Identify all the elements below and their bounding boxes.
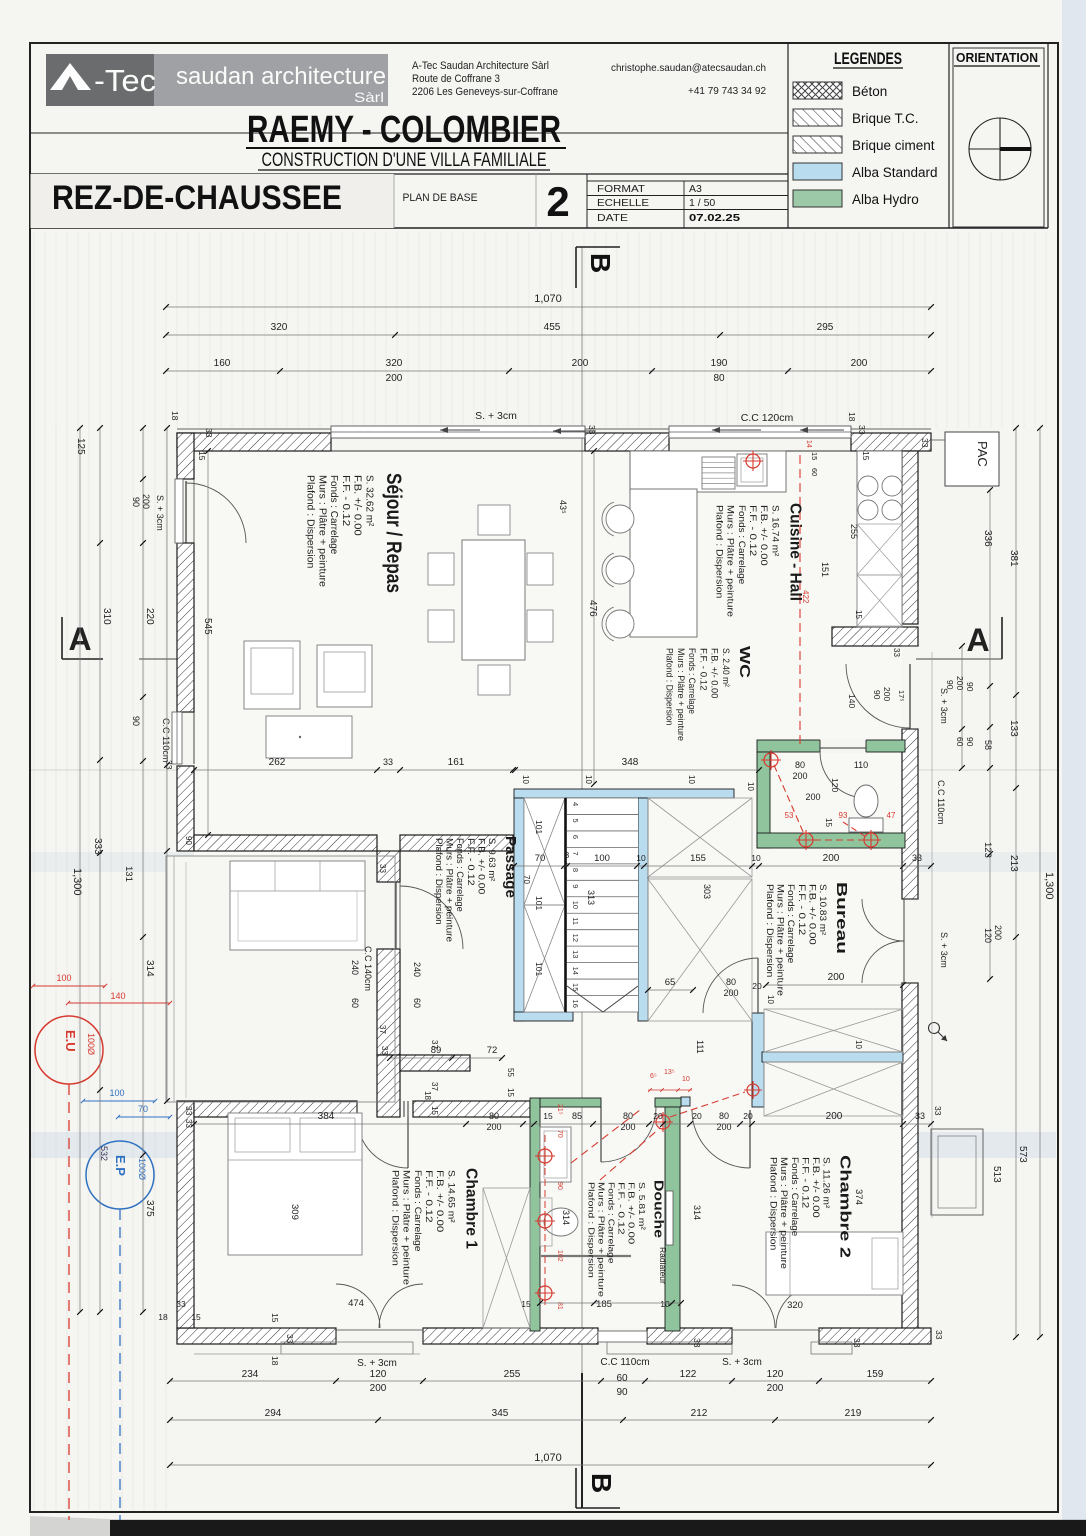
svg-text:303: 303 [702, 884, 712, 899]
svg-text:Plafond : Dispersion: Plafond : Dispersion [664, 648, 675, 726]
svg-text:B: B [585, 253, 616, 273]
svg-text:10: 10 [660, 1299, 670, 1309]
svg-text:200: 200 [805, 792, 820, 802]
svg-text:131: 131 [123, 866, 134, 882]
svg-text:Murs : Plâtre + peinture: Murs : Plâtre + peinture [445, 838, 455, 942]
svg-text:E.P: E.P [113, 1155, 128, 1176]
svg-text:F.F. - 0.12: F.F. - 0.12 [747, 505, 758, 556]
svg-text:53: 53 [785, 811, 794, 820]
svg-text:15: 15 [824, 818, 833, 827]
svg-text:240: 240 [412, 962, 422, 977]
svg-text:PLAN DE BASE: PLAN DE BASE [403, 192, 478, 204]
svg-text:37: 37 [378, 1025, 387, 1034]
svg-text:93: 93 [839, 811, 848, 820]
svg-text:Passage: Passage [502, 836, 518, 898]
svg-text:10: 10 [746, 782, 755, 791]
svg-text:160: 160 [214, 358, 231, 369]
svg-text:Murs : Plâtre + peinture: Murs : Plâtre + peinture [597, 1182, 607, 1297]
svg-text:200: 200 [828, 972, 845, 983]
svg-text:33: 33 [164, 760, 174, 770]
svg-text:Murs : Plâtre + peinture: Murs : Plâtre + peinture [675, 648, 686, 741]
svg-text:295: 295 [817, 322, 834, 333]
svg-text:47: 47 [887, 811, 896, 820]
svg-text:4: 4 [571, 802, 580, 806]
svg-text:Fonds : Carrelage: Fonds : Carrelage [790, 1157, 800, 1236]
svg-text:33: 33 [204, 428, 214, 438]
svg-text:F.F. - 0.12: F.F. - 0.12 [697, 648, 708, 691]
svg-text:C.C 110cm: C.C 110cm [600, 1357, 649, 1368]
svg-text:70: 70 [522, 875, 531, 884]
svg-text:DATE: DATE [597, 212, 628, 224]
svg-text:S. + 3cm: S. + 3cm [722, 1357, 762, 1368]
svg-text:375: 375 [144, 1200, 155, 1217]
svg-text:255: 255 [849, 524, 859, 539]
svg-text:S. + 3cm: S. + 3cm [939, 688, 949, 724]
svg-text:33: 33 [857, 425, 867, 435]
svg-text:E.U: E.U [63, 1030, 78, 1052]
svg-text:70: 70 [556, 1130, 563, 1138]
svg-text:100: 100 [594, 853, 610, 864]
svg-text:90: 90 [616, 1387, 628, 1398]
svg-text:Plafond : Dispersion: Plafond : Dispersion [713, 505, 724, 598]
svg-text:F.B. +/- 0.00: F.B. +/- 0.00 [758, 505, 769, 566]
svg-text:101: 101 [534, 962, 544, 976]
svg-text:A: A [966, 622, 989, 658]
svg-text:C.C 120cm: C.C 120cm [741, 412, 794, 424]
svg-text:Radiateur: Radiateur [658, 1247, 668, 1284]
svg-text:S. 5.81 m²: S. 5.81 m² [637, 1182, 647, 1230]
svg-text:F.B. +/- 0.00: F.B. +/- 0.00 [811, 1157, 821, 1218]
svg-text:saudan architecture: saudan architecture [176, 63, 386, 90]
svg-text:15: 15 [430, 1106, 439, 1115]
svg-text:155: 155 [690, 853, 706, 864]
svg-text:Plafond : Dispersion: Plafond : Dispersion [769, 1157, 779, 1250]
svg-text:43⁵: 43⁵ [558, 500, 568, 514]
svg-text:161: 161 [448, 757, 465, 768]
svg-text:RAEMY - COLOMBIER: RAEMY - COLOMBIER [247, 109, 561, 151]
svg-text:Sàrl: Sàrl [354, 89, 384, 105]
svg-text:90: 90 [131, 716, 141, 726]
svg-text:10: 10 [521, 775, 530, 784]
svg-text:70: 70 [535, 853, 546, 864]
svg-text:S. 32.62 m²: S. 32.62 m² [363, 475, 374, 527]
svg-text:15: 15 [521, 1299, 531, 1309]
svg-text:200: 200 [141, 494, 151, 509]
svg-text:200: 200 [620, 1122, 635, 1132]
svg-text:90: 90 [556, 1182, 563, 1190]
svg-text:200: 200 [486, 1122, 501, 1132]
svg-text:200: 200 [386, 373, 403, 384]
svg-text:200: 200 [882, 687, 892, 701]
svg-text:Alba Hydro: Alba Hydro [852, 192, 919, 207]
svg-text:33: 33 [933, 1106, 943, 1116]
svg-text:+41 79 743 34 92: +41 79 743 34 92 [688, 85, 766, 97]
svg-text:10: 10 [766, 995, 775, 1004]
svg-text:S. 2.40 m²: S. 2.40 m² [720, 648, 731, 687]
svg-text:Cuisine - Hall: Cuisine - Hall [786, 503, 803, 601]
svg-text:234: 234 [242, 1369, 259, 1380]
svg-text:8: 8 [571, 868, 580, 872]
svg-text:Murs : Plâtre + peinture: Murs : Plâtre + peinture [401, 1170, 412, 1285]
svg-text:60: 60 [616, 1373, 628, 1384]
svg-text:ORIENTATION: ORIENTATION [956, 50, 1038, 65]
svg-text:Brique T.C.: Brique T.C. [852, 111, 919, 126]
svg-text:LEGENDES: LEGENDES [834, 49, 902, 68]
svg-text:255: 255 [504, 1369, 521, 1380]
svg-text:314: 314 [144, 960, 155, 977]
svg-text:Fonds : Carrelage: Fonds : Carrelage [736, 505, 747, 584]
svg-text:133: 133 [1008, 720, 1019, 737]
svg-text:Plafond : Dispersion: Plafond : Dispersion [389, 1170, 400, 1266]
svg-text:18: 18 [423, 1091, 432, 1100]
svg-text:80: 80 [719, 1111, 729, 1121]
svg-text:ECHELLE: ECHELLE [597, 197, 649, 209]
svg-text:374: 374 [853, 1189, 864, 1205]
svg-text:384: 384 [318, 1111, 335, 1122]
svg-text:200: 200 [851, 358, 868, 369]
svg-text:320: 320 [386, 358, 403, 369]
svg-text:120: 120 [370, 1369, 387, 1380]
svg-text:Chambre 1: Chambre 1 [462, 1168, 479, 1249]
svg-text:20: 20 [752, 981, 762, 991]
svg-text:12: 12 [571, 934, 580, 942]
svg-text:33: 33 [184, 1119, 193, 1128]
svg-text:65: 65 [665, 977, 676, 988]
svg-text:33: 33 [912, 853, 922, 863]
svg-text:Bureau: Bureau [833, 882, 849, 954]
svg-text:S. 16.74 m²: S. 16.74 m² [769, 505, 780, 556]
svg-text:Murs : Plâtre + peinture: Murs : Plâtre + peinture [725, 505, 736, 617]
svg-text:33: 33 [920, 438, 930, 448]
svg-text:13: 13 [571, 950, 580, 958]
svg-text:100: 100 [109, 1088, 124, 1098]
svg-text:B: B [586, 1473, 617, 1493]
svg-text:10: 10 [571, 901, 580, 909]
svg-text:F.B. +/- 0.00: F.B. +/- 0.00 [807, 884, 817, 945]
svg-text:545: 545 [202, 618, 213, 635]
svg-text:314: 314 [561, 1210, 571, 1225]
svg-text:Murs : Plâtre + peinture: Murs : Plâtre + peinture [776, 884, 786, 996]
svg-text:33: 33 [285, 1334, 295, 1344]
svg-text:100: 100 [56, 973, 71, 983]
svg-text:6⁵: 6⁵ [650, 1073, 657, 1080]
svg-text:F.B. +/- 0.00: F.B. +/- 0.00 [627, 1182, 637, 1245]
svg-text:Fonds : Carrelage: Fonds : Carrelage [607, 1182, 617, 1264]
svg-text:123: 123 [982, 842, 993, 858]
svg-text:101: 101 [534, 896, 544, 910]
svg-text:6: 6 [571, 835, 580, 839]
svg-text:F.F. - 0.12: F.F. - 0.12 [797, 884, 807, 935]
svg-text:Fonds : Carrelage: Fonds : Carrelage [786, 884, 796, 963]
svg-text:513: 513 [991, 1166, 1002, 1183]
svg-text:90: 90 [131, 497, 141, 507]
svg-text:F.F. - 0.12: F.F. - 0.12 [800, 1157, 810, 1208]
svg-text:336: 336 [982, 530, 993, 547]
svg-text:A-Tec Saudan Architecture Sàrl: A-Tec Saudan Architecture Sàrl [412, 60, 549, 72]
svg-text:1,070: 1,070 [534, 293, 562, 305]
svg-text:CONSTRUCTION D'UNE VILLA FAMIL: CONSTRUCTION D'UNE VILLA FAMILIALE [262, 150, 547, 171]
svg-text:310: 310 [101, 608, 112, 625]
svg-text:F.B. +/- 0.00: F.B. +/- 0.00 [476, 838, 486, 894]
svg-text:15: 15 [270, 1313, 280, 1323]
svg-text:200: 200 [723, 988, 738, 998]
svg-text:212: 212 [691, 1408, 708, 1419]
svg-text:213: 213 [1008, 855, 1019, 872]
svg-text:200: 200 [767, 1383, 784, 1394]
svg-text:309: 309 [289, 1204, 300, 1220]
svg-text:333: 333 [92, 838, 103, 855]
svg-text:15: 15 [506, 1088, 515, 1097]
svg-text:185: 185 [596, 1299, 612, 1310]
svg-text:33: 33 [380, 1046, 389, 1055]
svg-text:S. 11.26 m²: S. 11.26 m² [822, 1157, 832, 1208]
svg-text:33: 33 [587, 425, 597, 435]
svg-text:10: 10 [584, 775, 593, 784]
svg-text:F.F. - 0.12: F.F. - 0.12 [617, 1182, 627, 1235]
svg-text:1,300: 1,300 [71, 868, 83, 896]
svg-text:345: 345 [492, 1408, 509, 1419]
svg-text:573: 573 [1017, 1146, 1028, 1163]
svg-text:33: 33 [852, 1338, 862, 1348]
svg-text:33: 33 [176, 1299, 186, 1309]
svg-text:200: 200 [993, 925, 1003, 940]
svg-text:5: 5 [571, 818, 580, 822]
svg-text:140: 140 [110, 991, 125, 1001]
svg-text:F.B. +/- 0.00: F.B. +/- 0.00 [434, 1170, 445, 1232]
svg-text:200: 200 [572, 358, 589, 369]
svg-text:20: 20 [692, 1111, 702, 1121]
svg-text:7: 7 [571, 851, 580, 855]
svg-text:Plafond : Dispersion: Plafond : Dispersion [304, 475, 315, 568]
svg-text:33: 33 [892, 648, 901, 657]
svg-text:33: 33 [184, 1106, 194, 1116]
svg-text:110: 110 [854, 760, 868, 770]
svg-text:60: 60 [350, 998, 360, 1008]
svg-text:F.F. - 0.12: F.F. - 0.12 [423, 1170, 434, 1223]
svg-text:-Tec: -Tec [94, 63, 156, 98]
svg-text:200: 200 [716, 1122, 731, 1132]
svg-text:33: 33 [915, 1111, 925, 1121]
svg-text:10: 10 [751, 853, 761, 863]
svg-text:101: 101 [534, 820, 544, 834]
svg-text:Plafond : Dispersion: Plafond : Dispersion [765, 884, 775, 977]
svg-text:80: 80 [713, 373, 725, 384]
svg-text:1,300: 1,300 [1043, 872, 1055, 900]
svg-text:90: 90 [965, 737, 975, 747]
svg-text:532: 532 [99, 1146, 109, 1161]
svg-text:18: 18 [270, 1356, 280, 1366]
svg-text:320: 320 [787, 1300, 803, 1311]
svg-text:F.B. +/- 0.00: F.B. +/- 0.00 [352, 475, 363, 536]
svg-text:120: 120 [983, 928, 993, 943]
svg-text:S. + 3cm: S. + 3cm [475, 410, 517, 422]
svg-text:C.C 110cm: C.C 110cm [936, 780, 946, 824]
svg-text:Alba Standard: Alba Standard [852, 165, 938, 180]
svg-text:476: 476 [587, 600, 598, 617]
svg-text:455: 455 [544, 322, 561, 333]
svg-text:C.C 140cm: C.C 140cm [363, 946, 373, 991]
svg-text:15: 15 [861, 451, 871, 461]
svg-text:S. 9.63 m²: S. 9.63 m² [487, 838, 497, 881]
svg-text:33: 33 [383, 757, 393, 767]
svg-text:07.02.25: 07.02.25 [689, 212, 740, 224]
svg-text:200: 200 [826, 1111, 843, 1122]
svg-text:15: 15 [854, 610, 863, 619]
svg-text:Brique ciment: Brique ciment [852, 138, 935, 153]
svg-text:313: 313 [586, 890, 596, 905]
svg-text:C.C 110cm: C.C 110cm [161, 718, 171, 762]
svg-text:55: 55 [506, 1068, 515, 1077]
svg-text:200: 200 [792, 771, 807, 781]
svg-text:2: 2 [546, 178, 569, 225]
svg-text:262: 262 [269, 757, 286, 768]
svg-text:Douche: Douche [652, 1180, 667, 1238]
svg-text:80: 80 [726, 977, 736, 987]
svg-text:320: 320 [271, 322, 288, 333]
svg-text:16: 16 [571, 1000, 580, 1008]
svg-text:2206 Les Geneveys-sur-Coffrane: 2206 Les Geneveys-sur-Coffrane [412, 86, 558, 98]
svg-text:S. + 3cm: S. + 3cm [155, 495, 165, 531]
svg-text:F.F. - 0.12: F.F. - 0.12 [340, 475, 351, 527]
svg-text:100Ø: 100Ø [137, 1158, 147, 1180]
svg-text:15: 15 [197, 451, 207, 461]
svg-text:120: 120 [767, 1369, 784, 1380]
svg-text:REZ-DE-CHAUSSEE: REZ-DE-CHAUSSEE [52, 179, 342, 217]
svg-text:120: 120 [830, 778, 840, 792]
svg-text:Fonds : Carrelage: Fonds : Carrelage [412, 1170, 423, 1252]
svg-text:15: 15 [191, 1312, 201, 1322]
svg-text:159: 159 [867, 1369, 884, 1380]
svg-text:10: 10 [854, 1040, 863, 1049]
svg-text:140: 140 [847, 694, 857, 708]
svg-text:Plafond : Dispersion: Plafond : Dispersion [587, 1182, 597, 1278]
svg-text:Route de Coffrane 3: Route de Coffrane 3 [412, 73, 500, 85]
svg-text:125: 125 [75, 438, 86, 455]
svg-text:314: 314 [692, 1205, 702, 1220]
svg-text:20: 20 [743, 1111, 753, 1121]
svg-text:A3: A3 [689, 183, 702, 195]
svg-text:85: 85 [572, 1111, 582, 1121]
svg-text:200: 200 [823, 853, 840, 864]
svg-text:13⁵: 13⁵ [664, 1069, 675, 1076]
svg-text:100Ø: 100Ø [86, 1033, 96, 1055]
svg-text:S. + 3cm: S. + 3cm [357, 1358, 397, 1369]
svg-text:219: 219 [845, 1408, 862, 1419]
svg-text:90: 90 [965, 682, 975, 692]
svg-text:18: 18 [158, 1312, 168, 1322]
svg-text:Murs : Plâtre + peinture: Murs : Plâtre + peinture [779, 1157, 789, 1269]
svg-text:Plafond : Dispersion: Plafond : Dispersion [434, 838, 444, 925]
svg-text:1 / 50: 1 / 50 [689, 197, 715, 209]
svg-text:14: 14 [805, 440, 812, 448]
svg-text:10: 10 [687, 775, 696, 784]
svg-text:190: 190 [711, 358, 728, 369]
svg-text:21⁵: 21⁵ [556, 1104, 563, 1115]
svg-text:90: 90 [872, 690, 882, 700]
svg-text:80: 80 [623, 1111, 633, 1121]
svg-text:151: 151 [820, 562, 830, 577]
svg-text:122: 122 [680, 1369, 697, 1380]
svg-text:F.F. - 0.12: F.F. - 0.12 [466, 838, 476, 886]
svg-text:348: 348 [622, 757, 639, 768]
svg-text:111: 111 [695, 1040, 705, 1054]
svg-text:33: 33 [378, 864, 387, 873]
svg-text:Fonds : Carrelage: Fonds : Carrelage [455, 838, 465, 912]
svg-text:10: 10 [636, 853, 646, 863]
svg-text:240: 240 [350, 960, 360, 975]
svg-text:3: 3 [565, 851, 570, 860]
svg-text:37: 37 [430, 1040, 439, 1049]
svg-text:F.B. +/- 0.00: F.B. +/- 0.00 [709, 648, 720, 698]
svg-text:60: 60 [412, 998, 422, 1008]
svg-text:20: 20 [653, 1111, 663, 1121]
svg-text:christophe.saudan@atecsaudan.c: christophe.saudan@atecsaudan.ch [611, 62, 766, 74]
svg-text:220: 220 [144, 608, 155, 625]
svg-text:Béton: Béton [852, 84, 887, 99]
svg-text:9: 9 [571, 884, 580, 888]
svg-text:PAC: PAC [975, 441, 990, 467]
svg-text:60: 60 [810, 468, 819, 476]
svg-text:14: 14 [571, 967, 580, 975]
svg-text:33: 33 [934, 1330, 944, 1340]
svg-text:200: 200 [370, 1383, 387, 1394]
svg-text:10: 10 [682, 1076, 690, 1083]
svg-text:Séjour / Repas: Séjour / Repas [382, 473, 405, 593]
svg-text:72: 72 [487, 1045, 498, 1056]
svg-text:FORMAT: FORMAT [597, 183, 646, 195]
svg-text:90: 90 [184, 836, 193, 845]
svg-text:60: 60 [955, 737, 965, 747]
svg-text:474: 474 [348, 1298, 364, 1309]
svg-text:1,070: 1,070 [534, 1452, 562, 1464]
svg-text:58: 58 [983, 740, 993, 750]
svg-text:33: 33 [692, 1338, 702, 1348]
svg-text:S. 14.65 m²: S. 14.65 m² [445, 1170, 456, 1223]
svg-text:Fonds : Carrelage: Fonds : Carrelage [328, 475, 339, 555]
svg-text:S. 10.83 m²: S. 10.83 m² [818, 884, 828, 935]
svg-text:18: 18 [170, 411, 180, 421]
svg-text:200: 200 [955, 676, 965, 690]
svg-text:Murs : Plâtre + peinture: Murs : Plâtre + peinture [316, 475, 327, 587]
svg-text:102: 102 [556, 1250, 563, 1262]
svg-text:294: 294 [265, 1408, 282, 1419]
svg-text:Chambre 2: Chambre 2 [837, 1155, 854, 1258]
svg-text:Fonds : Carrelage: Fonds : Carrelage [686, 648, 697, 714]
svg-text:15: 15 [543, 1111, 553, 1121]
svg-text:WC: WC [736, 646, 752, 679]
svg-text:11: 11 [571, 917, 580, 925]
svg-text:15: 15 [810, 452, 819, 460]
svg-text:80: 80 [795, 760, 805, 770]
svg-text:17⁵: 17⁵ [897, 690, 906, 701]
svg-text:S. + 3cm: S. + 3cm [939, 932, 949, 968]
svg-text:18: 18 [847, 412, 857, 422]
svg-text:381: 381 [1008, 550, 1019, 567]
svg-text:80: 80 [489, 1111, 499, 1121]
